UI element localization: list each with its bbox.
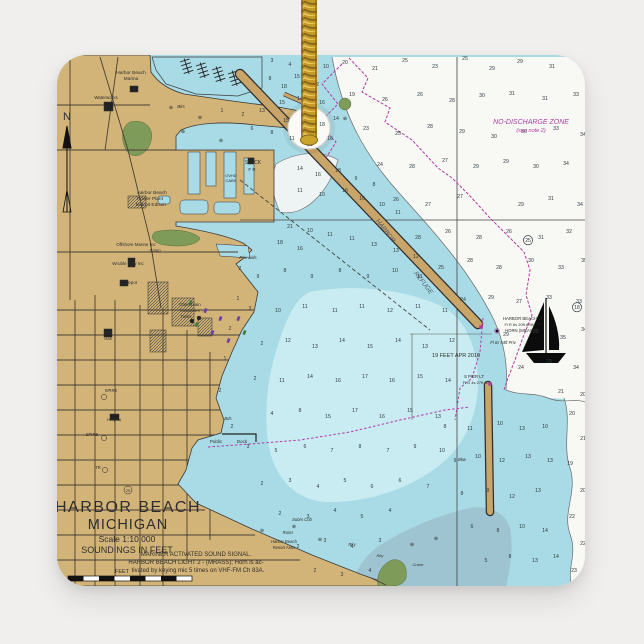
sounding-number: 3: [289, 478, 292, 484]
sounding-number: 12: [387, 308, 393, 314]
chart-label: HARBOR BEACH LT: [503, 316, 544, 321]
sounding-number: 11: [395, 210, 400, 216]
sounding-number: 16: [359, 196, 365, 202]
chart-label: Wruble Elev Inc: [112, 261, 144, 266]
waterworks-building: [104, 102, 113, 111]
sounding-number: 13: [422, 344, 428, 350]
sounding-number: 14: [297, 166, 303, 172]
sounding-number: 11: [467, 426, 472, 432]
sounding-number: 3: [324, 538, 327, 544]
sounding-number: 26: [382, 97, 388, 103]
sounding-number: 26: [445, 229, 451, 235]
sounding-number: 27: [442, 158, 448, 164]
chart-label: Offshore Marine Inc: [116, 242, 156, 247]
sounding-number: 17: [362, 374, 368, 380]
sounding-number: 13: [532, 558, 538, 564]
chart-label: F R: [248, 167, 256, 172]
chart-label: SPIRE: [86, 432, 99, 437]
chart-label: Champlain: [179, 302, 201, 307]
sounding-number: 6: [371, 484, 374, 490]
sounding-number: 28: [476, 235, 482, 241]
sounding-number: 11: [279, 378, 284, 384]
sounding-number: 19: [349, 92, 355, 98]
sounding-number: 1: [224, 356, 227, 362]
sounding-number: 13: [535, 488, 541, 494]
chart-label: 25: [126, 488, 131, 493]
chart-label: Subm Crib: [292, 517, 312, 522]
sounding-number: 11: [415, 304, 420, 310]
sounding-number: 28: [409, 164, 415, 170]
sounding-number: 14: [333, 116, 339, 122]
chart-label: Hospital: [107, 417, 122, 422]
sounding-number: 3: [271, 58, 274, 64]
sounding-number: 25: [525, 238, 531, 244]
sounding-number: 4: [271, 411, 274, 417]
chart-label: Industries: [180, 308, 200, 313]
chart-label: SPIRE: [105, 388, 118, 393]
chart-label: Marina: [124, 76, 139, 82]
sounding-number: 12: [509, 494, 515, 500]
sounding-number: 31: [549, 64, 555, 70]
sounding-number: 2: [254, 376, 257, 382]
sounding-number: 23: [432, 64, 438, 70]
sounding-number: 7: [331, 448, 334, 454]
sounding-number: 25: [395, 131, 401, 137]
chart-label: MICHIGAN: [88, 517, 169, 533]
sounding-number: 12: [285, 338, 291, 344]
sounding-number: 15: [325, 414, 331, 420]
sounding-number: 10: [439, 448, 445, 454]
sounding-number: 4: [369, 568, 372, 574]
sounding-number: 17: [352, 408, 358, 414]
tank-symbol: [190, 319, 194, 323]
sounding-number: 5: [485, 558, 488, 564]
sounding-number: 19: [567, 461, 573, 467]
chart-label: Bds: [224, 416, 232, 421]
chart-label: Waterworks: [94, 95, 118, 100]
chart-label: MARINER ACTIVATED SOUND SIGNAL.: [141, 552, 252, 558]
sounding-number: 21: [372, 66, 378, 72]
sounding-number: 26: [417, 92, 423, 98]
sounding-number: 16: [335, 378, 341, 384]
sounding-number: 26: [393, 197, 399, 203]
sounding-number: 2: [219, 388, 222, 394]
sounding-number: 10: [475, 454, 481, 460]
sounding-number: 11: [297, 188, 302, 194]
rock-symbol: ⊕: [410, 542, 414, 548]
sounding-number: 33: [573, 92, 579, 98]
sounding-number: 12: [413, 254, 419, 260]
sounding-number: 2: [242, 112, 245, 118]
sounding-number: 13: [259, 108, 265, 114]
rock-symbol: ⊕: [198, 115, 202, 121]
sounding-number: 30: [577, 58, 583, 64]
sounding-number: 18: [574, 305, 580, 311]
sounding-number: 10: [319, 192, 325, 198]
chart-label: Ramp: [149, 248, 161, 253]
chart-label: Tanks: [181, 314, 192, 319]
chart-label: HARBOR BEACH LIGHT 2 - (MRASS); Horn is …: [128, 560, 263, 566]
sounding-number: 13: [435, 414, 441, 420]
sounding-number: 18: [335, 168, 341, 174]
sounding-number: 13: [393, 248, 399, 254]
sounding-number: 8: [269, 76, 272, 82]
sounding-number: 13: [547, 458, 553, 464]
chart-label: Public: [210, 439, 223, 444]
sounding-number: 32: [566, 229, 572, 235]
rock-symbol: ⊕: [260, 528, 264, 534]
sounding-number: 10: [392, 268, 398, 274]
sounding-number: 2: [261, 481, 264, 487]
sounding-number: 3: [249, 306, 252, 312]
sounding-number: 30: [491, 134, 497, 140]
sounding-number: 11: [327, 232, 332, 238]
sounding-number: 3: [247, 444, 250, 450]
sounding-number: 27: [425, 202, 431, 208]
sounding-number: 29: [517, 59, 523, 65]
sounding-number: 18: [277, 240, 283, 246]
sounding-number: 15: [279, 100, 285, 106]
chart-label: Depot: [125, 280, 138, 285]
sounding-number: 34: [581, 327, 585, 333]
sounding-number: 31: [542, 96, 548, 102]
sounding-number: 2: [279, 511, 282, 517]
sounding-number: 25: [438, 265, 444, 271]
sounding-number: 16: [342, 188, 348, 194]
sounding-number: 14: [542, 528, 548, 534]
sounding-number: 16: [389, 378, 395, 384]
sounding-number: 31: [538, 235, 544, 241]
sounding-number: 28: [467, 258, 473, 264]
sounding-number: 9: [454, 458, 457, 464]
sounding-number: 2: [229, 326, 232, 332]
sounding-number: 2: [297, 544, 300, 550]
sounding-number: 24: [518, 365, 524, 371]
sounding-number: 35: [560, 335, 566, 341]
sounding-number: 21: [558, 389, 564, 395]
sounding-number: 16: [379, 414, 385, 420]
sounding-number: 14: [339, 338, 345, 344]
sounding-number: 10: [379, 202, 385, 208]
chart-label: HORN (MRASS): [505, 328, 538, 333]
cord-rope: [301, 0, 317, 140]
sounding-number: 29: [473, 164, 479, 170]
sounding-number: 21: [287, 224, 293, 230]
sounding-number: 14: [553, 554, 559, 560]
rock-symbol: ⊕: [219, 138, 223, 144]
sounding-number: 9: [414, 444, 417, 450]
sounding-number: 9: [257, 274, 260, 280]
sounding-number: 27: [516, 299, 522, 305]
sounding-number: 10: [275, 308, 281, 314]
sounding-number: 25: [402, 58, 408, 64]
sounding-number: 34: [563, 161, 569, 167]
rock-symbol: ⊕: [181, 129, 185, 135]
sounding-number: 22: [569, 514, 575, 520]
sounding-number: 29: [489, 66, 495, 72]
chart-label: Rky: [348, 542, 356, 547]
sounding-number: 1: [237, 296, 240, 302]
sounding-number: 8: [461, 491, 464, 497]
sounding-number: 7: [387, 448, 390, 454]
sounding-number: 5: [361, 514, 364, 520]
sounding-number: 28: [449, 98, 455, 104]
sounding-number: 8: [271, 130, 274, 136]
sounding-number: 11: [349, 236, 354, 242]
chart-label: STACK: [245, 160, 262, 166]
sounding-number: 14: [307, 374, 313, 380]
sounding-number: 8: [284, 268, 287, 274]
sounding-number: 6: [304, 444, 307, 450]
rock-symbol: ⊕: [434, 536, 438, 542]
tank-symbol: [197, 316, 201, 320]
chart-label: 19 FEET APR 2016: [432, 353, 480, 359]
chart-label: NO-DISCHARGE ZONE: [493, 119, 569, 126]
sounding-number: 30: [528, 258, 534, 264]
sounding-number: 29: [459, 129, 465, 135]
sounding-number: 33: [546, 295, 552, 301]
sounding-number: 5: [275, 448, 278, 454]
chart-label: Fl R 6s 20ft 8StM "2": [504, 322, 542, 327]
chart-label: Crane: [413, 562, 425, 567]
chart-label: Fl G 4s 27ft "1": [463, 380, 490, 385]
sounding-number: 18: [281, 84, 287, 90]
chart-label: Dock: [237, 439, 248, 444]
sounding-number: 2: [314, 568, 317, 574]
chart-label: Resort Assn: [273, 545, 296, 550]
sounding-number: 21: [580, 436, 585, 442]
sounding-number: 3: [341, 572, 344, 578]
sounding-number: 2: [261, 341, 264, 347]
sounding-number: 23: [363, 126, 369, 132]
sounding-number: 8: [299, 408, 302, 414]
sounding-number: 2: [239, 266, 242, 272]
sounding-number: 5: [344, 478, 347, 484]
chart-label: HARBOR BEACH: [57, 499, 201, 516]
sounding-number: 11: [332, 308, 337, 314]
sounding-number: 8: [444, 424, 447, 430]
sounding-number: 35: [581, 258, 585, 264]
sounding-number: 4: [317, 484, 320, 490]
hanging-cord: [289, 0, 329, 152]
chart-label: N: [63, 111, 71, 123]
sounding-number: 9: [487, 488, 490, 494]
chart-label: Harbor Beach: [271, 539, 298, 544]
sounding-number: 13: [519, 426, 525, 432]
chart-label: CABS: [226, 178, 237, 183]
sounding-number: 12: [499, 458, 505, 464]
chart-label: S PIER LT: [464, 374, 484, 379]
sounding-number: 25: [462, 56, 468, 62]
sounding-number: 20: [342, 60, 348, 66]
sounding-number: 13: [312, 344, 318, 350]
sounding-number: 15: [417, 374, 423, 380]
sounding-number: 8: [339, 268, 342, 274]
sounding-number: 34: [577, 202, 583, 208]
sounding-number: 12: [449, 338, 455, 344]
sounding-number: 10: [542, 424, 548, 430]
sounding-number: 2: [231, 424, 234, 430]
chart-label: City: [104, 330, 112, 335]
chart-label: (see note 2): [516, 128, 546, 134]
sounding-number: 26: [506, 229, 512, 235]
sounding-number: 28: [496, 265, 502, 271]
sounding-number: 33: [553, 126, 559, 132]
sounding-number: 1: [221, 108, 224, 114]
chart-label: Harbor Beach: [137, 190, 167, 196]
sounding-number: 28: [427, 124, 433, 130]
sounding-number: 6: [399, 478, 402, 484]
sounding-number: 28: [415, 235, 421, 241]
sounding-number: 4: [334, 508, 337, 514]
sounding-number: 31: [509, 91, 515, 97]
rock-symbol: ⊕: [343, 116, 347, 122]
sounding-number: 7: [427, 484, 430, 490]
sounding-number: 13: [525, 454, 531, 460]
sounding-number: 15: [367, 344, 373, 350]
sounding-number: 27: [457, 194, 463, 200]
chart-label: tivated by keying mic 5 times on VHF-FM …: [132, 568, 265, 574]
sounding-number: 9: [311, 274, 314, 280]
sounding-number: 6: [471, 524, 474, 530]
sounding-number: 8: [373, 182, 376, 188]
sounding-number: 34: [573, 365, 579, 371]
sounding-number: 11: [302, 304, 307, 310]
cord-tip: [301, 135, 318, 145]
chart-label: FEET: [115, 569, 130, 575]
sounding-number: 15: [407, 408, 413, 414]
sounding-number: 6: [251, 126, 254, 132]
sounding-number: 14: [395, 338, 401, 344]
sounding-number: 16: [297, 246, 303, 252]
sounding-number: 13: [371, 242, 377, 248]
sounding-number: 9: [367, 274, 370, 280]
sounding-number: 10: [497, 421, 503, 427]
sounding-number: 29: [503, 159, 509, 165]
sounding-number: 4: [389, 508, 392, 514]
sounding-number: 14: [445, 378, 451, 384]
sounding-number: 20: [580, 488, 585, 494]
sounding-number: 29: [546, 359, 552, 365]
chart-label: Rky: [377, 553, 385, 558]
sounding-number: 8: [509, 554, 512, 560]
sounding-number: 30: [533, 164, 539, 170]
sounding-number: 30: [479, 93, 485, 99]
sounding-number: 9: [355, 176, 358, 182]
sounding-number: 10: [519, 524, 525, 530]
chart-label: Detroit Edison: [136, 202, 166, 208]
sounding-number: 29: [488, 295, 494, 301]
sounding-number: 24: [377, 162, 383, 168]
sounding-number: 3: [379, 538, 382, 544]
chart-label: Power Plant: [137, 196, 164, 202]
sounding-number: 20: [569, 411, 575, 417]
chart-label: TR: [95, 465, 101, 470]
scale-bar: [68, 576, 192, 581]
rock-symbol: ⊕: [169, 105, 173, 111]
sounding-number: 24: [460, 297, 466, 303]
sounding-number: 11: [442, 308, 447, 314]
sounding-number: 33: [558, 265, 564, 271]
rock-symbol: ⊕: [318, 537, 322, 543]
sounding-number: 11: [359, 304, 364, 310]
chart-label: Scale 1:10,000: [99, 534, 156, 544]
sounding-number: 34: [580, 132, 585, 138]
sounding-number: 29: [518, 202, 524, 208]
sounding-number: 8: [359, 444, 362, 450]
chart-label: Bkw: [458, 457, 467, 462]
chart-label: Fl 6s 54ft Priv: [490, 340, 517, 345]
sounding-number: 10: [307, 228, 313, 234]
sounding-number: 20: [580, 392, 585, 398]
sounding-number: 16: [315, 172, 321, 178]
sounding-number: 31: [548, 196, 554, 202]
sounding-number: 23: [571, 568, 577, 574]
chart-label: Priv aids: [239, 255, 257, 260]
sounding-number: 22: [580, 541, 585, 547]
chart-label: Ruins: [283, 530, 295, 535]
chart-label: Harbor Beach: [116, 70, 146, 76]
chart-label: Hall: [104, 336, 111, 341]
chart-label: Bks: [177, 104, 185, 109]
sounding-number: 8: [497, 528, 500, 534]
